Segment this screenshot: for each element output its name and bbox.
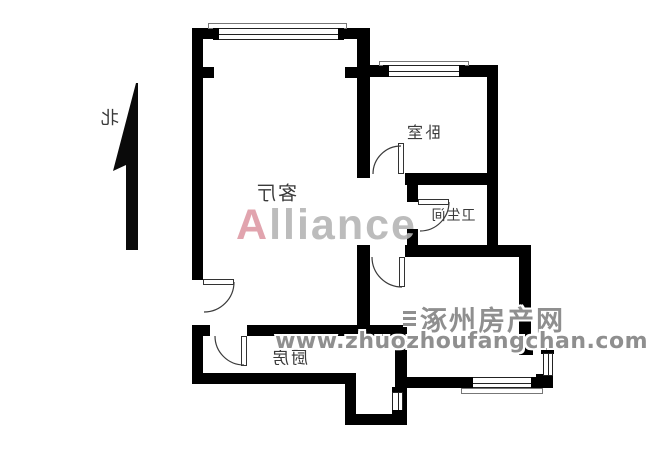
wall-segment: [405, 173, 498, 185]
wall-segment: [405, 245, 531, 257]
wall-segment: [192, 28, 213, 39]
room-label-bedroom: 卧室: [405, 119, 441, 143]
window: [213, 28, 344, 40]
wall-segment: [192, 325, 210, 336]
door-arc-entry: [204, 282, 234, 312]
wall-segment: [357, 65, 383, 77]
alliance-watermark: Alliance: [236, 201, 417, 250]
window-end-cap: [383, 65, 389, 77]
door-leaf-bedroom: [398, 143, 404, 174]
window-end-cap: [531, 377, 537, 388]
wall-segment: [407, 185, 418, 202]
wall-segment: [192, 373, 351, 384]
wall-corner-block: [536, 374, 553, 388]
window: [392, 392, 403, 411]
door-arc-bedroom: [373, 146, 401, 174]
room-label-bathroom: 卫生间: [431, 205, 476, 225]
floor-plan-canvas: 北 客厅 卧室 卫生间 厨房 Alliance 涿州房产网 www.zhuozh…: [0, 0, 650, 450]
door-arc-hall: [372, 257, 402, 287]
north-label: 北: [101, 104, 119, 130]
window: [383, 65, 465, 77]
window: [467, 377, 537, 388]
site-logo-icon: [403, 311, 416, 327]
window-end-cap: [213, 28, 219, 40]
window-end-cap: [338, 28, 344, 40]
wall-column-stub: [345, 67, 357, 78]
door-leaf-hall: [399, 257, 405, 287]
wall-column-stub: [203, 67, 214, 78]
wall-segment: [192, 28, 203, 280]
window-frame: [461, 388, 543, 394]
window-end-cap: [459, 65, 465, 77]
wall-segment: [357, 28, 370, 178]
door-arc-kitchen: [215, 336, 244, 365]
door-leaf-kitchen: [241, 336, 247, 366]
wall-segment: [487, 65, 498, 253]
window: [543, 353, 553, 376]
site-watermark-url: www.zhuozhoufangchan.com: [275, 329, 648, 354]
window-end-cap: [467, 377, 473, 388]
door-leaf-entry: [203, 279, 234, 285]
wall-segment: [357, 245, 370, 336]
window-end-cap: [392, 410, 405, 416]
